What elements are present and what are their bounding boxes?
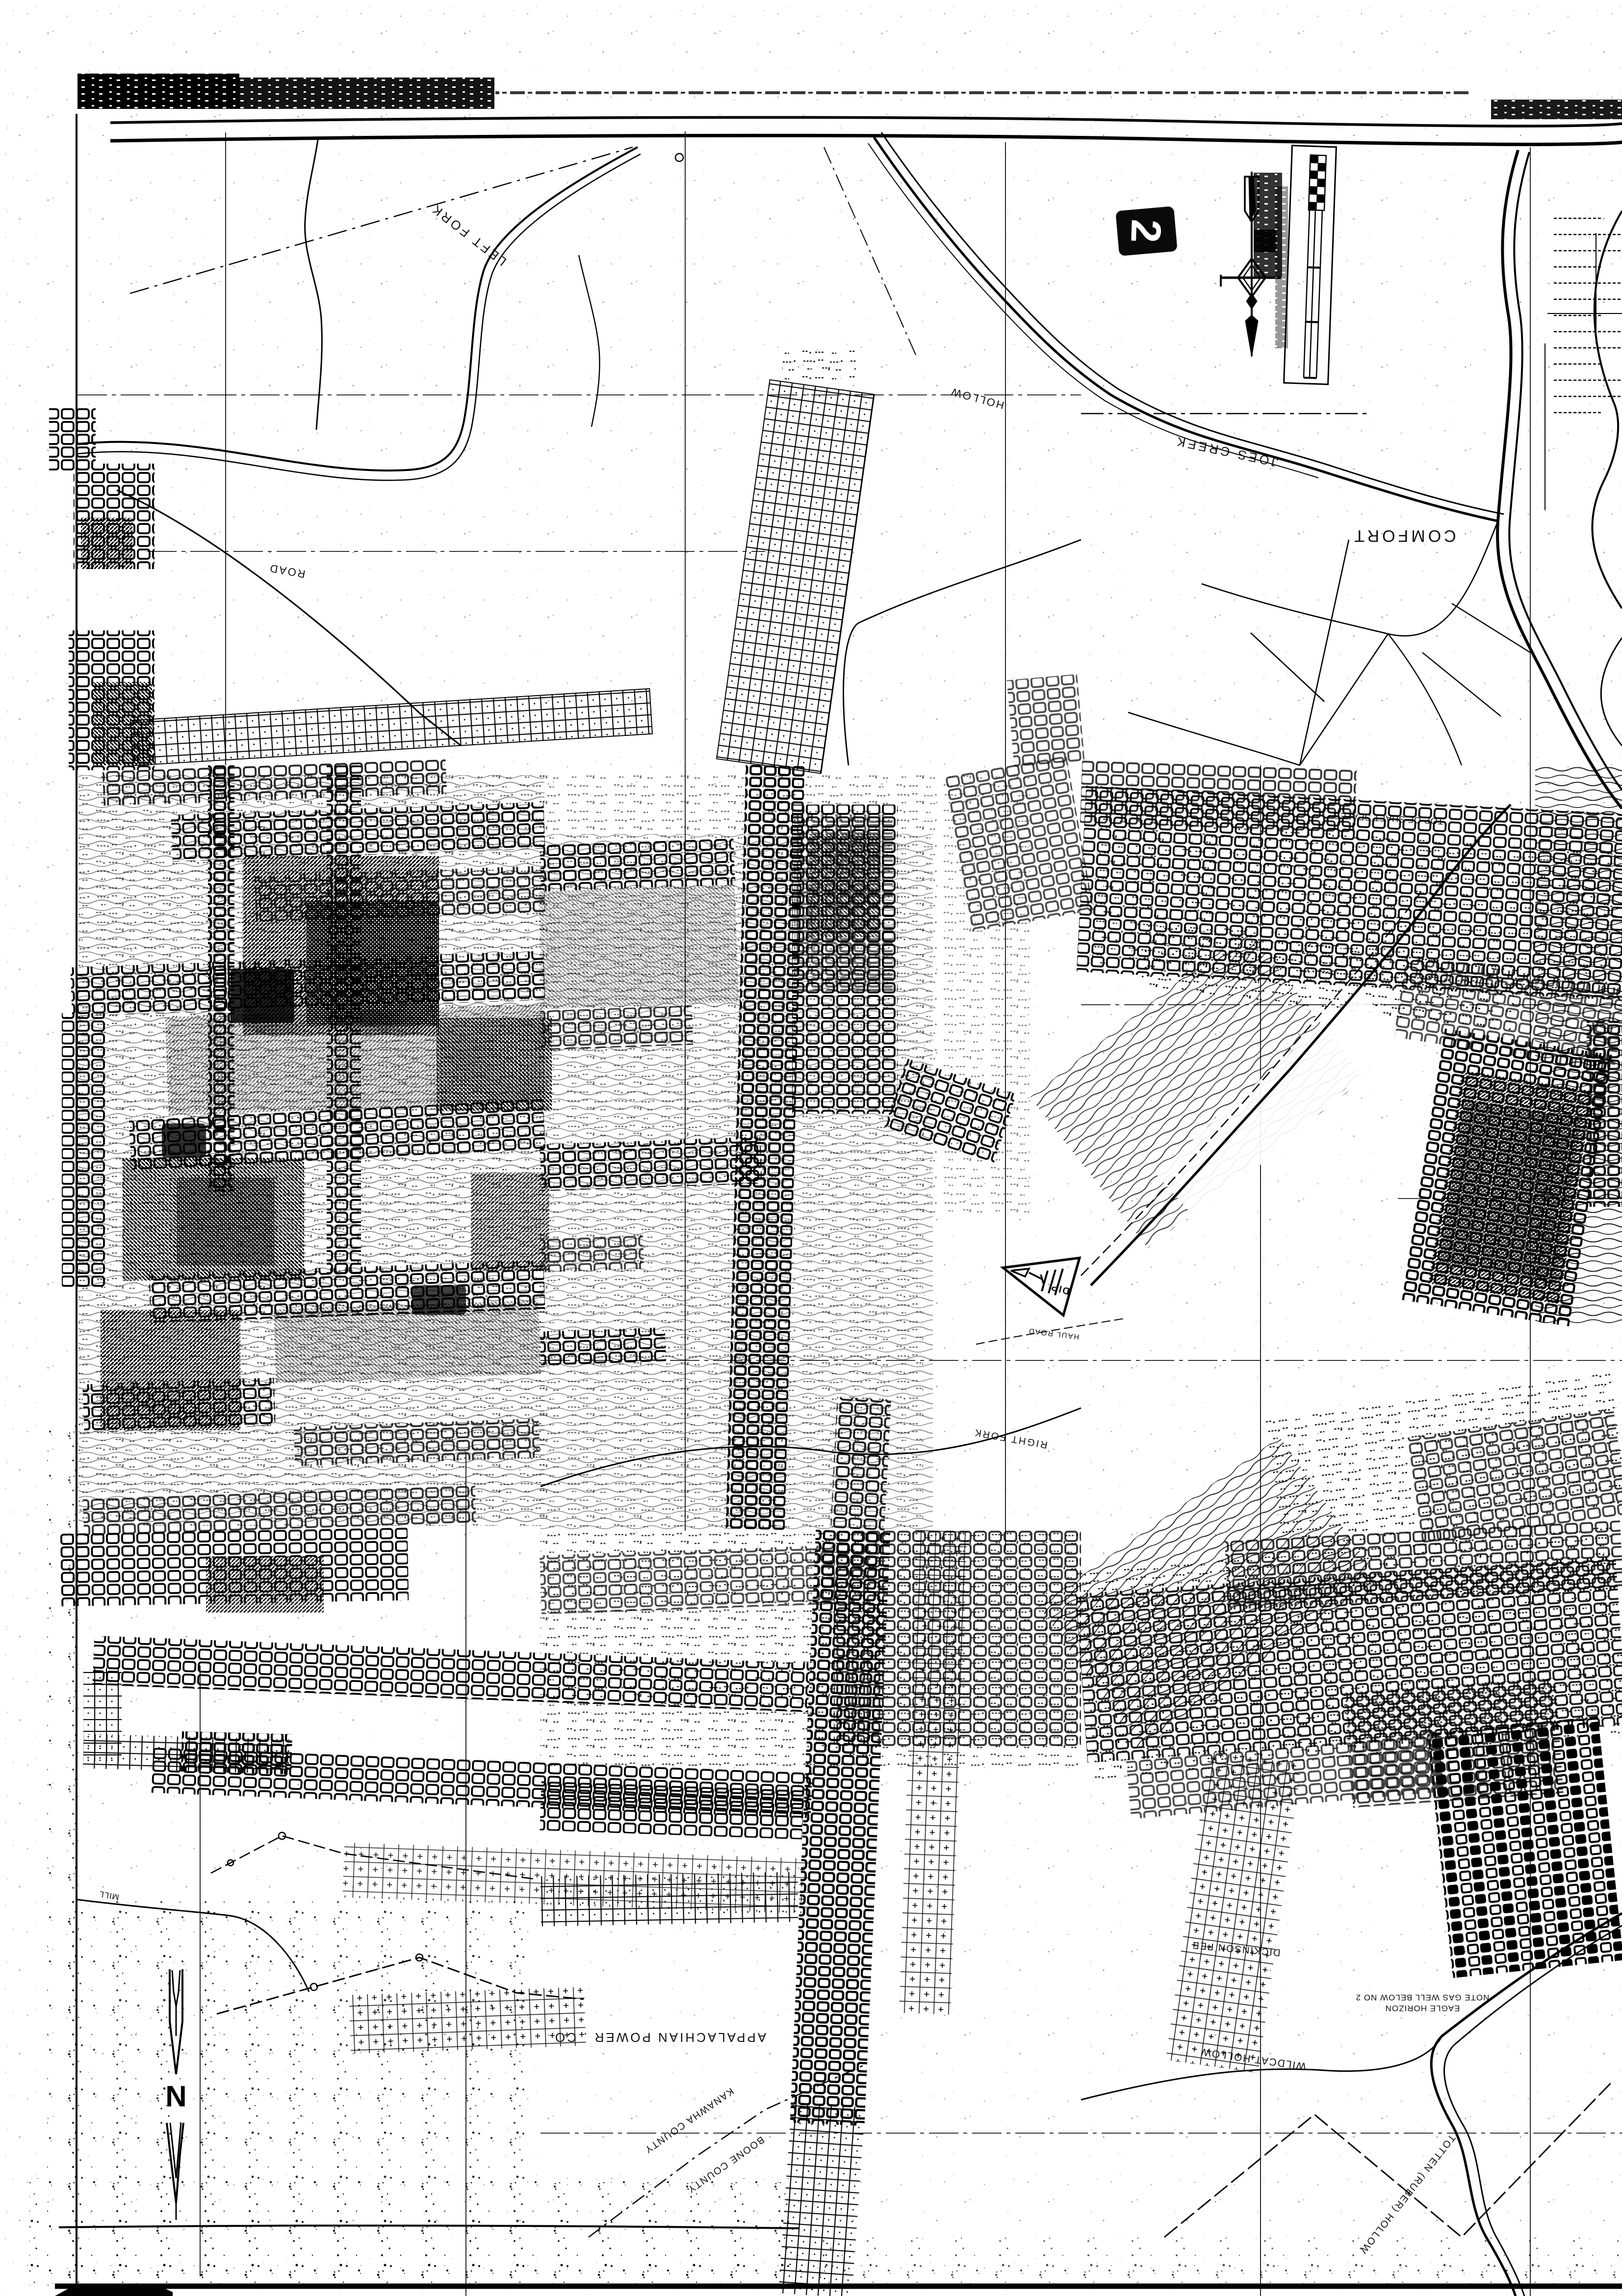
svg-text:APPALACHIAN POWER . CO: APPALACHIAN POWER . CO (553, 2030, 766, 2045)
svg-text:COMFORT: COMFORT (1351, 526, 1456, 545)
svg-text:2: 2 (1122, 218, 1170, 243)
svg-text:NOTE GAS WELL BELOW NO 2: NOTE GAS WELL BELOW NO 2 (1356, 1993, 1490, 2002)
svg-text:N: N (165, 2080, 186, 2113)
svg-text:EAGLE HORIZON: EAGLE HORIZON (1385, 2004, 1460, 2013)
